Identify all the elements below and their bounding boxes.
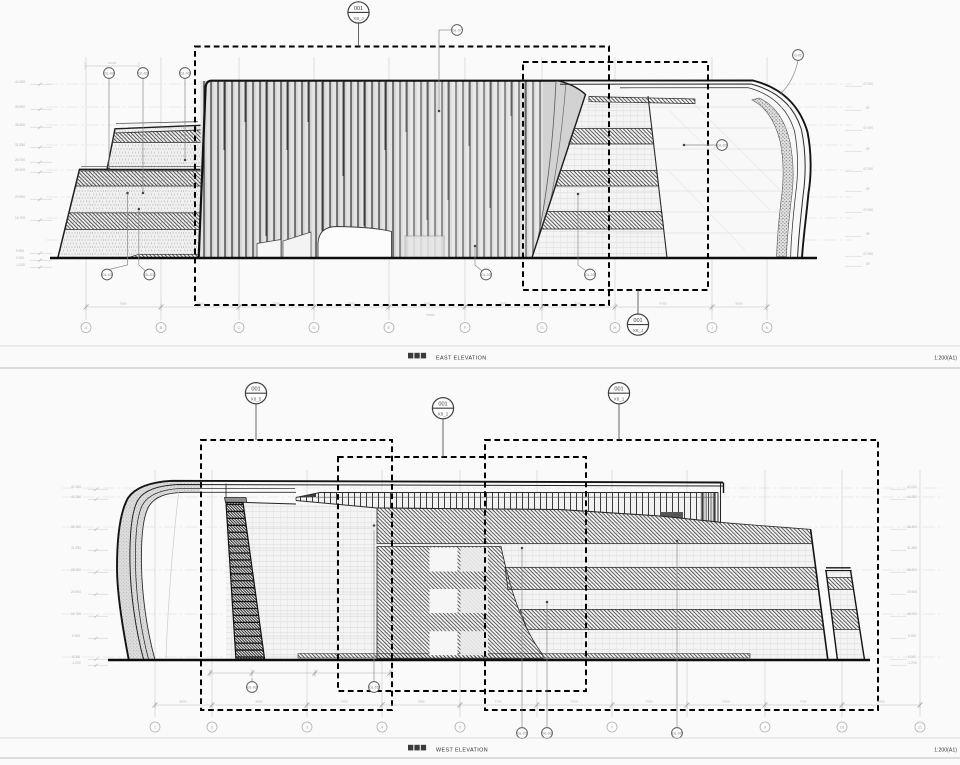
svg-text:7700: 7700 (800, 700, 807, 704)
svg-text:X8_J: X8_J (353, 16, 363, 21)
svg-text:44.350: 44.350 (15, 80, 25, 84)
svg-text:47.000: 47.000 (863, 126, 873, 130)
svg-text:7600: 7600 (424, 302, 431, 306)
svg-text:GL-03: GL-03 (145, 273, 155, 277)
svg-text:20.900: 20.900 (71, 590, 81, 594)
svg-text:B: B (160, 325, 163, 330)
svg-text:47.000: 47.000 (863, 167, 873, 171)
svg-text:0.000: 0.000 (908, 655, 916, 659)
svg-text:E: E (388, 325, 391, 330)
svg-text:5F: 5F (866, 262, 870, 266)
svg-text:GL-03: GL-03 (517, 731, 527, 735)
svg-text:26.300: 26.300 (15, 168, 25, 172)
svg-text:GL-03: GL-03 (542, 731, 552, 735)
svg-text:20.900: 20.900 (15, 195, 25, 199)
svg-text:001: 001 (614, 387, 623, 393)
svg-text:001: 001 (354, 6, 363, 12)
svg-text:5F: 5F (866, 187, 870, 191)
svg-text:20.900: 20.900 (907, 590, 917, 594)
svg-text:GL-03: GL-03 (717, 143, 727, 147)
svg-text:47.000: 47.000 (863, 252, 873, 256)
svg-text:GL-03: GL-03 (585, 273, 595, 277)
svg-text:9.900: 9.900 (72, 634, 80, 638)
svg-text:G: G (540, 325, 543, 330)
svg-text:0.000: 0.000 (16, 256, 24, 260)
svg-text:A: A (85, 325, 88, 330)
svg-text:16.700: 16.700 (15, 216, 25, 220)
svg-text:7500: 7500 (646, 700, 653, 704)
svg-text:16.700: 16.700 (907, 612, 917, 616)
svg-text:16.700: 16.700 (71, 612, 81, 616)
svg-text:001: 001 (251, 387, 260, 393)
svg-text:31.850: 31.850 (71, 546, 81, 550)
svg-text:X8_J: X8_J (633, 328, 643, 333)
svg-text:9.900: 9.900 (16, 249, 24, 253)
svg-text:5500: 5500 (736, 302, 743, 306)
svg-text:EAST ELEVATION: EAST ELEVATION (436, 355, 487, 361)
svg-text:GL-03: GL-03 (104, 71, 114, 75)
svg-text:GL-07: GL-07 (452, 28, 462, 32)
svg-text:GL-03: GL-03 (102, 273, 112, 277)
svg-text:31.850: 31.850 (15, 143, 25, 147)
svg-text:10: 10 (840, 725, 845, 730)
svg-text:44.350: 44.350 (907, 495, 917, 499)
svg-text:GL-03: GL-03 (180, 71, 190, 75)
svg-text:9700: 9700 (660, 302, 667, 306)
svg-text:44.350: 44.350 (71, 495, 81, 499)
svg-text:GL-03: GL-03 (369, 685, 379, 689)
svg-text:9500: 9500 (256, 700, 263, 704)
svg-text:001: 001 (438, 402, 447, 408)
svg-text:WEST ELEVATION: WEST ELEVATION (436, 747, 488, 753)
svg-text:28.700: 28.700 (15, 158, 25, 162)
svg-text:X8_2: X8_2 (438, 412, 449, 417)
svg-text:GL-03: GL-03 (481, 273, 491, 277)
svg-text:47.000: 47.000 (863, 82, 873, 86)
svg-text:47.000: 47.000 (907, 485, 917, 489)
svg-text:7500: 7500 (500, 302, 507, 306)
svg-text:G-01: G-01 (794, 53, 802, 57)
svg-text:5F: 5F (866, 147, 870, 151)
svg-text:75600: 75600 (426, 313, 435, 317)
svg-text:39.900: 39.900 (15, 105, 25, 109)
svg-text:7800: 7800 (418, 700, 425, 704)
svg-text:001: 001 (633, 318, 642, 324)
svg-text:26.300: 26.300 (907, 568, 917, 572)
svg-text:7800: 7800 (878, 700, 885, 704)
svg-text:GL-03: GL-03 (138, 71, 148, 75)
svg-text:1:200(A1): 1:200(A1) (934, 747, 957, 753)
svg-text:7800: 7800 (723, 700, 730, 704)
svg-text:J: J (711, 325, 713, 330)
svg-text:7500: 7500 (273, 302, 280, 306)
svg-text:7500: 7500 (120, 302, 127, 306)
svg-text:36.300: 36.300 (71, 525, 81, 529)
svg-text:7500: 7500 (348, 302, 355, 306)
svg-text:7700: 7700 (495, 700, 502, 704)
svg-text:0.000: 0.000 (72, 655, 80, 659)
svg-text:7500: 7500 (571, 700, 578, 704)
svg-text:X8_5: X8_5 (251, 397, 262, 402)
svg-text:31.850: 31.850 (907, 546, 917, 550)
svg-text:GL-03: GL-03 (672, 731, 682, 735)
svg-text:36.300: 36.300 (15, 123, 25, 127)
svg-text:-1.200: -1.200 (71, 661, 81, 665)
svg-text:D: D (313, 325, 316, 330)
svg-text:15000: 15000 (108, 61, 117, 65)
svg-text:7500: 7500 (341, 700, 348, 704)
svg-text:5600: 5600 (180, 700, 187, 704)
svg-text:5F: 5F (866, 232, 870, 236)
svg-text:C: C (238, 325, 241, 330)
svg-text:-1.200: -1.200 (15, 263, 25, 267)
svg-text:7300: 7300 (575, 302, 582, 306)
svg-text:26.300: 26.300 (71, 568, 81, 572)
svg-text:H: H (614, 325, 617, 330)
svg-text:GL-03: GL-03 (247, 685, 257, 689)
svg-text:1:200(A1): 1:200(A1) (934, 355, 957, 361)
svg-text:47.000: 47.000 (863, 208, 873, 212)
svg-text:-1.200: -1.200 (907, 661, 917, 665)
svg-text:7800: 7800 (197, 302, 204, 306)
svg-text:9.900: 9.900 (908, 634, 916, 638)
svg-text:X8_1: X8_1 (614, 397, 625, 402)
svg-text:36.300: 36.300 (907, 525, 917, 529)
svg-text:47.000: 47.000 (71, 485, 81, 489)
svg-text:5F: 5F (866, 106, 870, 110)
svg-text:K: K (766, 325, 769, 330)
